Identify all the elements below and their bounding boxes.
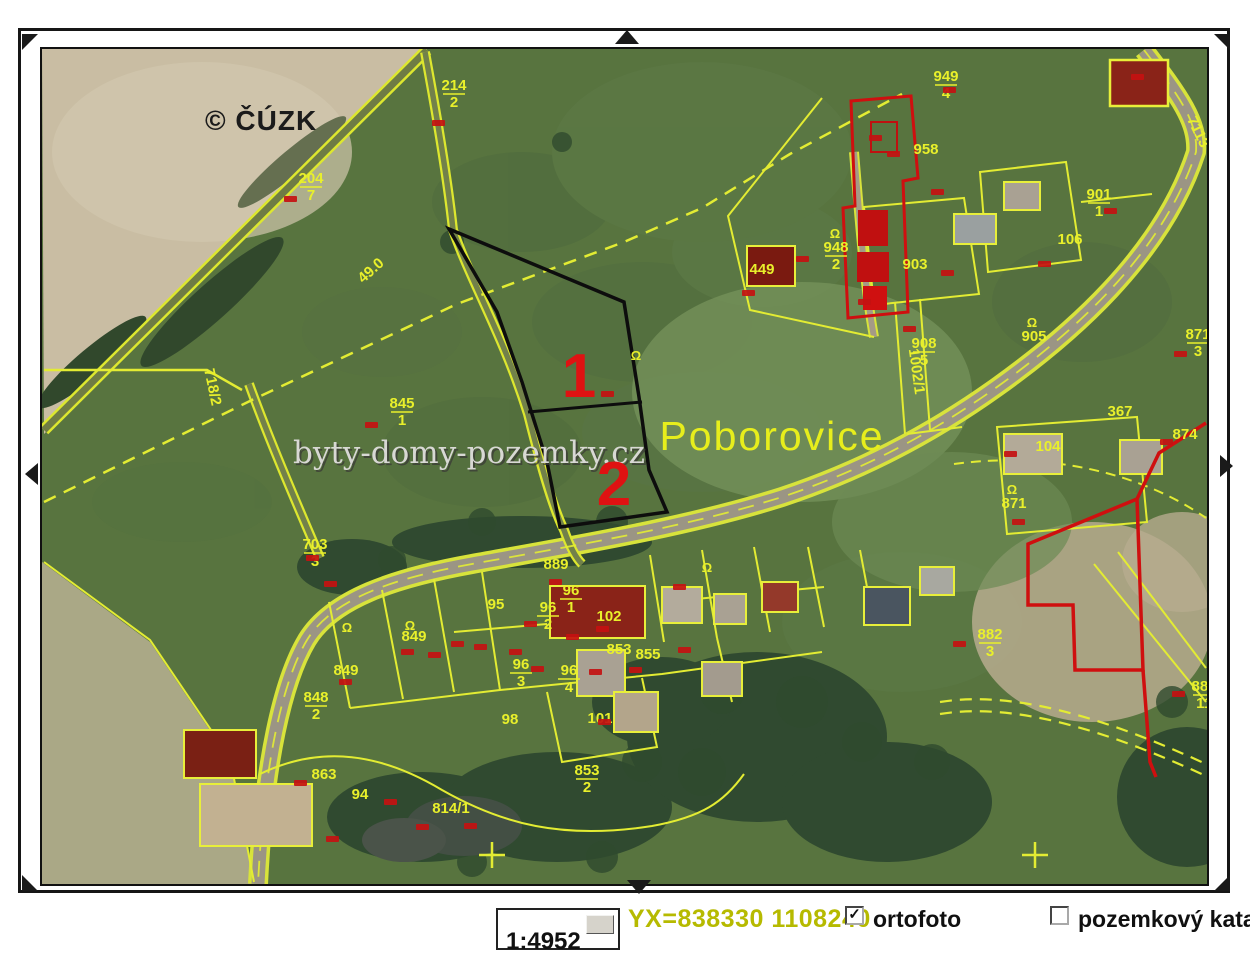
red-annotation-mark: [306, 555, 319, 561]
svg-text:871: 871: [1185, 326, 1207, 343]
parcel-number-label: 102: [596, 608, 621, 625]
svg-text:905: 905: [1021, 328, 1046, 345]
scale-dropdown-button[interactable]: [586, 915, 614, 934]
scale-value: 1:4952: [506, 928, 581, 956]
coordinates-readout: YX=838330 1108240: [628, 905, 871, 934]
red-annotation-mark: [549, 579, 562, 585]
svg-text:104: 104: [1035, 438, 1061, 455]
red-annotation-mark: [365, 422, 378, 428]
parcel-number-label: 106: [1057, 231, 1082, 248]
red-annotation-mark: [673, 584, 686, 590]
red-annotation-mark: [887, 151, 900, 157]
parcel-number-label: 855: [635, 646, 660, 663]
building-symbol: Ω: [1027, 315, 1037, 330]
cadastral-map[interactable]: © ČÚZK Poborovice byty-domy-pozemky.cz b…: [42, 49, 1207, 884]
red-annotation-mark: [629, 667, 642, 673]
red-annotation-mark: [796, 256, 809, 262]
svg-text:863: 863: [311, 766, 336, 783]
place-name-label: Poborovice: [659, 413, 884, 459]
parcel-number-label: 449: [749, 261, 774, 278]
red-annotation-mark: [464, 823, 477, 829]
red-annotation-mark: [566, 634, 579, 640]
katastr-label: pozemkový katastr: [1078, 906, 1250, 933]
building-symbol: Ω: [342, 620, 352, 635]
red-annotation-mark: [1038, 261, 1051, 267]
svg-text:96: 96: [561, 662, 578, 679]
svg-text:901: 901: [1086, 186, 1111, 203]
red-annotation-mark: [324, 581, 337, 587]
parcel-number-label: 814/1: [432, 800, 470, 817]
katastr-option[interactable]: pozemkový katastr: [1050, 906, 1250, 933]
parcel-number-label: 905: [1021, 328, 1046, 345]
svg-text:3: 3: [986, 643, 994, 660]
building-symbol: Ω: [830, 226, 840, 241]
svg-text:853: 853: [606, 641, 631, 658]
red-annotation-mark: [1104, 208, 1117, 214]
svg-text:889: 889: [543, 556, 568, 573]
katastr-checkbox[interactable]: [1050, 906, 1069, 925]
red-annotation-mark: [1160, 439, 1173, 445]
parcel-number-label: 958: [913, 141, 938, 158]
red-annotation-mark: [294, 780, 307, 786]
svg-text:853: 853: [574, 762, 599, 779]
svg-text:958: 958: [913, 141, 938, 158]
parcel-number-label: 95: [488, 596, 505, 613]
svg-text:848: 848: [303, 689, 328, 706]
svg-text:845: 845: [389, 395, 414, 412]
svg-text:814/1: 814/1: [432, 800, 470, 817]
parcel-number-label: 874: [1172, 426, 1198, 443]
svg-text:95: 95: [488, 596, 505, 613]
svg-text:96: 96: [513, 656, 530, 673]
svg-text:948: 948: [823, 239, 848, 256]
red-annotation-mark: [401, 649, 414, 655]
svg-text:7: 7: [307, 187, 315, 204]
building-symbol: Ω: [1007, 482, 1017, 497]
red-annotation-mark: [1131, 74, 1144, 80]
red-annotation-mark: [451, 641, 464, 647]
red-annotation-mark: [326, 836, 339, 842]
red-annotation-mark: [589, 669, 602, 675]
svg-text:214: 214: [441, 77, 467, 94]
svg-text:98: 98: [502, 711, 519, 728]
ortofoto-checkbox[interactable]: ✓: [845, 906, 864, 925]
svg-text:1: 1: [567, 599, 575, 616]
parcel-number-label: 889: [543, 556, 568, 573]
svg-text:2: 2: [544, 616, 552, 633]
svg-text:102: 102: [596, 608, 621, 625]
parcel-number-label: 94: [352, 786, 369, 803]
svg-text:11: 11: [1196, 695, 1207, 712]
map-viewport[interactable]: © ČÚZK Poborovice byty-domy-pozemky.cz b…: [40, 47, 1209, 886]
red-annotation-mark: [941, 270, 954, 276]
selected-parcel-marker: 1: [562, 342, 596, 411]
red-annotation-mark: [339, 679, 352, 685]
svg-text:367: 367: [1107, 403, 1132, 420]
building-symbol: Ω: [631, 348, 641, 363]
red-annotation-mark: [284, 196, 297, 202]
red-annotation-mark: [869, 135, 882, 141]
svg-text:96: 96: [563, 582, 580, 599]
parcel-number-label: 903: [902, 256, 927, 273]
ortofoto-option[interactable]: ✓ ortofoto: [845, 906, 961, 933]
selected-parcel-marker: 2: [597, 450, 631, 519]
svg-text:949: 949: [933, 68, 958, 85]
svg-text:880: 880: [1191, 678, 1207, 695]
red-annotation-mark: [598, 719, 611, 725]
svg-text:1: 1: [1095, 203, 1103, 220]
svg-text:204: 204: [298, 170, 324, 187]
red-annotation-mark: [1004, 451, 1017, 457]
ortofoto-label: ortofoto: [873, 906, 961, 933]
parcel-number-label: 871: [1001, 495, 1026, 512]
svg-text:871: 871: [1001, 495, 1026, 512]
parcel-number-label: 853: [606, 641, 631, 658]
red-annotation-mark: [858, 299, 871, 305]
watermark: byty-domy-pozemky.cz: [293, 435, 645, 471]
red-annotation-mark: [678, 647, 691, 653]
svg-text:4: 4: [565, 679, 574, 696]
red-annotation-mark: [1174, 351, 1187, 357]
parcel-number-label: 98: [502, 711, 519, 728]
building-symbol: Ω: [702, 560, 712, 575]
svg-text:3: 3: [517, 673, 525, 690]
red-annotation-mark: [509, 649, 522, 655]
parcel-number-label: 104: [1035, 438, 1061, 455]
svg-text:703: 703: [302, 536, 327, 553]
svg-text:96: 96: [540, 599, 557, 616]
svg-text:3: 3: [1194, 343, 1202, 360]
parcel-number-label: 863: [311, 766, 336, 783]
red-annotation-mark: [596, 626, 609, 632]
red-annotation-mark: [931, 189, 944, 195]
red-annotation-mark: [432, 120, 445, 126]
red-annotation-mark: [943, 87, 956, 93]
building-symbol: Ω: [405, 618, 415, 633]
red-annotation-mark: [1172, 691, 1185, 697]
check-icon: ✓: [848, 907, 861, 922]
statusbar: 1:4952 YX=838330 1108240 ✓ ortofoto poze…: [0, 897, 1250, 944]
svg-text:849: 849: [333, 662, 358, 679]
svg-text:449: 449: [749, 261, 774, 278]
red-annotation-mark: [1012, 519, 1025, 525]
parcel-number-label: 367: [1107, 403, 1132, 420]
red-annotation-mark: [524, 621, 537, 627]
svg-text:2: 2: [312, 706, 320, 723]
svg-text:874: 874: [1172, 426, 1198, 443]
red-annotation-mark: [953, 641, 966, 647]
red-annotation-mark: [531, 666, 544, 672]
parcel-number-label: 849: [333, 662, 358, 679]
svg-text:2: 2: [583, 779, 591, 796]
svg-text:2: 2: [450, 94, 458, 111]
svg-text:2: 2: [832, 256, 840, 273]
svg-text:855: 855: [635, 646, 660, 663]
svg-text:94: 94: [352, 786, 369, 803]
red-annotation-mark: [416, 824, 429, 830]
svg-text:903: 903: [902, 256, 927, 273]
cuzk-copyright: © ČÚZK: [205, 104, 317, 136]
svg-text:1: 1: [398, 412, 406, 429]
red-annotation-mark: [742, 290, 755, 296]
red-annotation-mark: [601, 391, 614, 397]
red-annotation-mark: [474, 644, 487, 650]
svg-text:882: 882: [977, 626, 1002, 643]
red-annotation-mark: [903, 326, 916, 332]
red-annotation-mark: [384, 799, 397, 805]
svg-text:106: 106: [1057, 231, 1082, 248]
red-annotation-mark: [428, 652, 441, 658]
